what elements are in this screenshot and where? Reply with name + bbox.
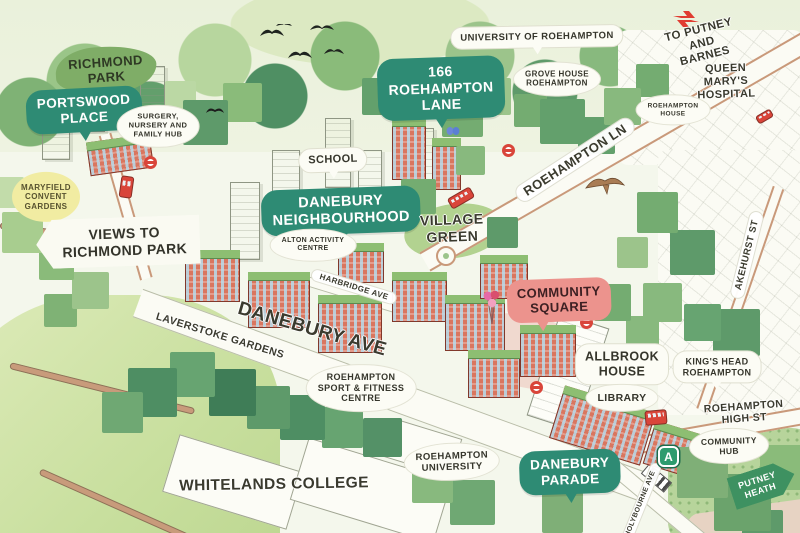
bus-stop-roundel-icon: [144, 156, 157, 169]
roehampton-sport-fitness-centre-label: ROEHAMPTON SPORT & FITNESS CENTRE: [306, 364, 417, 412]
bus-stop-a-marker: A: [658, 446, 679, 467]
roehampton-house-label: ROEHAMPTON HOUSE: [636, 94, 711, 125]
tree-clusters: [0, 0, 1, 1]
166-roehampton-lane-tower: [432, 138, 461, 190]
balloons-icon: [482, 290, 502, 328]
danebury-neighbourhood-label: DANEBURY NEIGHBOURHOOD: [261, 185, 422, 237]
village-green-roundabout: [436, 246, 456, 266]
views-to-richmond-park-label: VIEWS TO RICHMOND PARK: [35, 215, 200, 270]
166-roehampton-lane-label: 166 ROEHAMPTON LANE: [377, 55, 506, 121]
bus-icon: [644, 409, 667, 426]
bus-stop-roundel-icon: [502, 144, 515, 157]
illustrated-map: A RICHMOND PARKPORTSWOOD PLACESURGERY, N…: [0, 0, 800, 533]
bird-icon: [258, 24, 348, 66]
166-roehampton-lane-tower: [392, 118, 426, 180]
bus-stop-roundel-icon: [530, 381, 543, 394]
library-label: LIBRARY: [585, 384, 658, 412]
tower-block: [230, 182, 260, 260]
whitelands-college-label: WHITELANDS COLLEGE: [179, 474, 369, 496]
bat-icon: [206, 106, 224, 115]
bus-icon: [119, 175, 135, 199]
allbrook-house-label: ALLBROOK HOUSE: [575, 343, 669, 385]
grove-house-roehampton-label: GROVE HOUSE ROEHAMPTON: [513, 62, 601, 97]
queen-marys-hospital-label: QUEEN MARY'S HOSPITAL: [688, 61, 763, 102]
kings-head-roehampton-label: KING'S HEAD ROEHAMPTON: [673, 350, 762, 383]
university-of-roehampton-label: UNIVERSITY OF ROEHAMPTON: [450, 24, 624, 50]
maryfield-convent-gardens-label: MARYFIELD CONVENT GARDENS: [12, 172, 80, 222]
housing-block: [468, 350, 520, 398]
community-square-label: COMMUNITY SQUARE: [506, 277, 611, 323]
housing-block: [392, 272, 447, 322]
alton-activity-centre-label: ALTON ACTIVITY CENTRE: [270, 229, 357, 262]
housing-block: [520, 325, 576, 377]
school-label: SCHOOL: [298, 146, 368, 173]
bird-of-prey-icon: [584, 172, 626, 196]
danebury-parade-label: DANEBURY PARADE: [519, 448, 622, 495]
surgery-nursery-family-hub-label: SURGERY, NURSERY AND FAMILY HUB: [117, 105, 200, 148]
village-green-label: VILLAGE GREEN: [420, 210, 485, 245]
butterfly-icon: [446, 126, 460, 137]
